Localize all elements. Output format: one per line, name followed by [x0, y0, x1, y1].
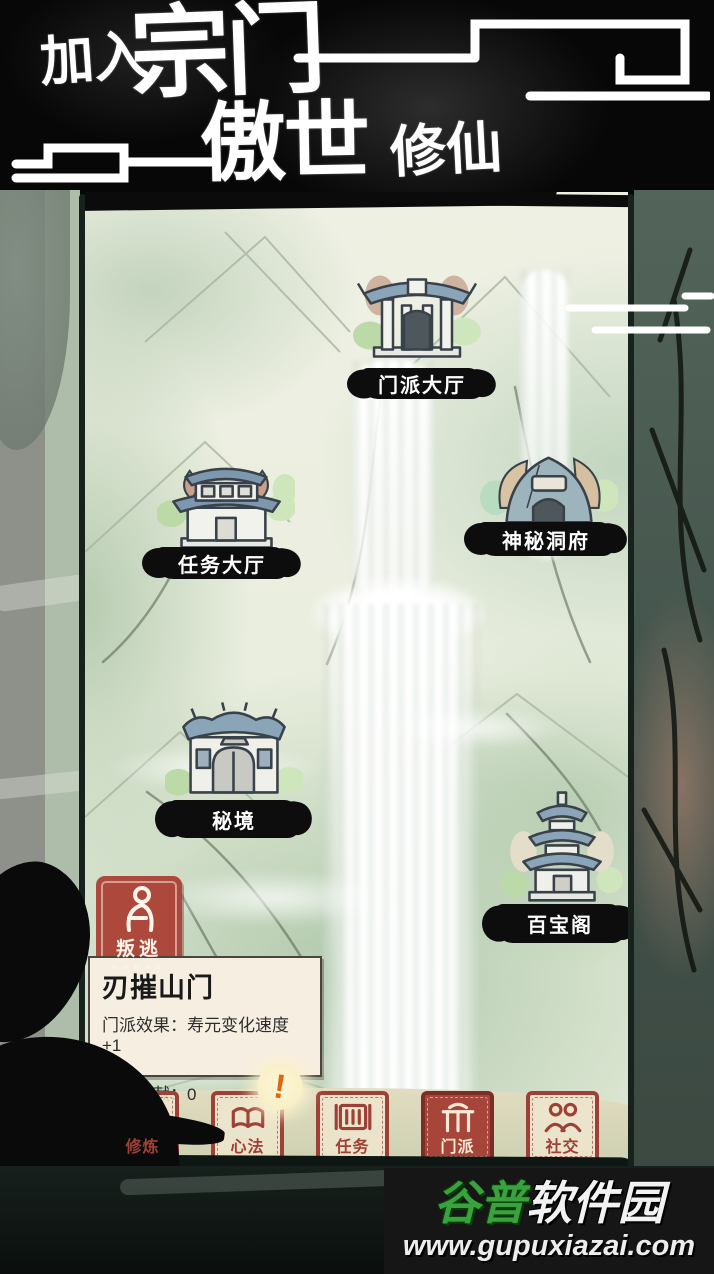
- watermark-url: www.gupuxiazai.com: [403, 1230, 695, 1263]
- mission-hall-building-icon[interactable]: [157, 444, 295, 552]
- sect-name: 刃摧山门: [102, 966, 308, 1005]
- location-label-treasure-pavilion[interactable]: 百宝阁: [495, 904, 625, 943]
- kneeling-person-icon: [116, 884, 162, 936]
- title-part-2: 宗门: [128, 0, 323, 105]
- map-border-right: [627, 194, 634, 1174]
- treasure-pavilion-pagoda-icon[interactable]: [501, 788, 623, 913]
- site-watermark: 谷普 软件园 www.gupuxiazai.com: [384, 1168, 714, 1274]
- rock-art: [0, 190, 70, 450]
- defect-button-label: 叛逃: [116, 934, 162, 961]
- sect-gate-icon: [437, 1099, 479, 1135]
- game-screen: 加入 宗门 傲世 修仙: [0, 0, 714, 1274]
- mystery-cave-mound-icon[interactable]: [480, 444, 618, 532]
- notification-badge: !: [257, 1064, 303, 1110]
- location-label-mystery-cave[interactable]: 神秘洞府: [477, 522, 615, 556]
- location-label-mission-hall[interactable]: 任务大厅: [155, 547, 289, 579]
- secret-realm-gate-icon[interactable]: [165, 692, 303, 807]
- two-people-icon: [542, 1099, 584, 1135]
- location-label-sect-hall[interactable]: 门派大厅: [360, 368, 484, 399]
- nav-sect-button[interactable]: 门派: [421, 1091, 494, 1163]
- right-margin-art: [634, 190, 714, 1274]
- title-part-4: 修仙: [389, 119, 504, 181]
- nav-missions-button[interactable]: 任务: [316, 1091, 389, 1163]
- open-book-icon: [227, 1099, 269, 1135]
- scroll-icon: [332, 1099, 374, 1135]
- watermark-site-name-green: 谷普: [434, 1180, 526, 1226]
- sect-effect: 门派效果：寿元变化速度+1: [102, 1011, 308, 1056]
- title-banner: 加入 宗门 傲世 修仙: [0, 0, 714, 196]
- title-part-3: 傲世: [199, 99, 368, 188]
- seal-marks: [112, 965, 166, 969]
- ink-branch-art: [634, 190, 714, 1274]
- location-label-secret-realm[interactable]: 秘境: [168, 800, 300, 838]
- nav-social-button[interactable]: 社交: [526, 1091, 599, 1163]
- sect-hall-building-icon[interactable]: [352, 252, 482, 367]
- watermark-site-name-white: 软件园: [526, 1180, 664, 1226]
- sect-map: 门派大厅 任务大厅: [85, 192, 628, 1174]
- cloud-scroll-icon: [6, 132, 226, 192]
